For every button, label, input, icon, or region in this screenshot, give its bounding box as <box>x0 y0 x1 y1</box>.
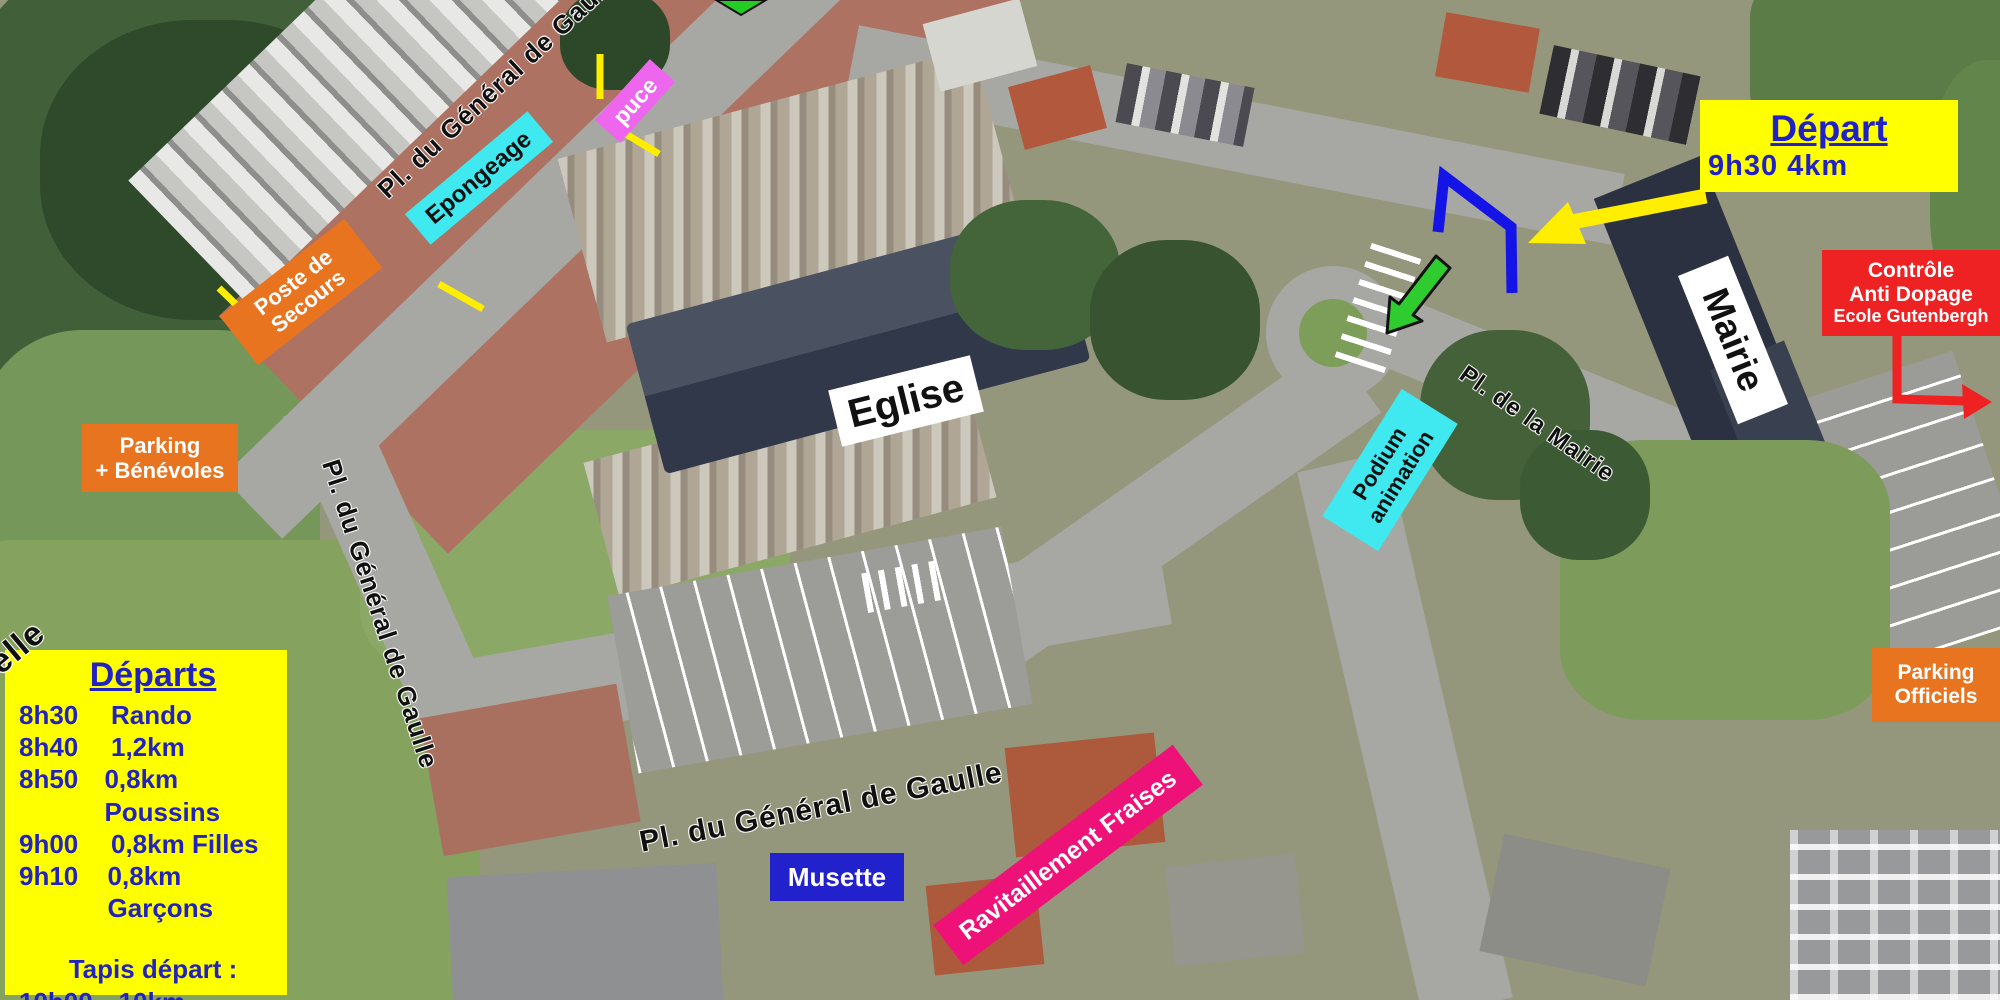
schedule-event: Rando <box>111 699 192 731</box>
schedule-time: 8h50 <box>19 763 104 827</box>
start-line-bracket-icon <box>1438 176 1512 293</box>
parking-officiels-callout: Parking Officiels <box>1872 648 2000 722</box>
controle-arrow-head-icon <box>1962 384 1992 419</box>
parking-benevoles-line1: Parking <box>120 433 201 458</box>
schedule-time: 10h00 <box>19 986 119 1000</box>
schedule-row: 10h00 10km Femmes <box>19 986 287 1000</box>
depart-callout: Départ 9h30 4km <box>1700 100 1958 192</box>
schedule-row: 9h00 0,8km Filles <box>19 828 287 860</box>
controle-line1: Contrôle <box>1868 259 1954 283</box>
race-course-map: Départ 9h30 4km Contrôle Anti Dopage Eco… <box>0 0 2000 1000</box>
departs-schedule-panel: Départs 8h30 Rando 8h40 1,2km 8h50 0,8km… <box>5 650 287 995</box>
depart-time: 9h30 4km <box>1700 150 1848 183</box>
schedule-row: 8h40 1,2km <box>19 731 287 763</box>
controle-line3: Ecole Gutenbergh <box>1833 306 1988 326</box>
schedule-time: 9h10 <box>19 860 108 924</box>
schedule-time: 8h30 <box>19 699 111 731</box>
schedule-title: Départs <box>19 656 287 695</box>
schedule-event: 0,8km Garçons <box>108 860 287 924</box>
controle-line2: Anti Dopage <box>1849 283 1973 307</box>
schedule-time: 8h40 <box>19 731 111 763</box>
depart-title: Départ <box>1770 109 1887 150</box>
schedule-row: 8h50 0,8km Poussins <box>19 763 287 827</box>
yellow-tick-icon <box>439 284 483 309</box>
controle-arrow-shaft <box>1897 336 1966 401</box>
depart-arrow-shaft <box>1572 196 1706 222</box>
schedule-event: 1,2km <box>111 731 185 763</box>
parking-officiels-line2: Officiels <box>1895 685 1978 709</box>
parking-officiels-line1: Parking <box>1897 661 1974 685</box>
schedule-time: 9h00 <box>19 828 111 860</box>
schedule-row: 8h30 Rando <box>19 699 287 731</box>
schedule-row: 9h10 0,8km Garçons <box>19 860 287 924</box>
schedule-event: 0,8km Filles <box>111 828 258 860</box>
top-edge-green-arrow-icon <box>716 0 766 15</box>
schedule-event: 10km Femmes <box>119 986 287 1000</box>
tapis-depart-label: Tapis départ : <box>19 953 287 987</box>
schedule-event: 0,8km Poussins <box>104 763 287 827</box>
controle-antidopage-callout: Contrôle Anti Dopage Ecole Gutenbergh <box>1822 250 2000 336</box>
musette-callout: Musette <box>770 853 904 901</box>
parking-benevoles-line2: + Bénévoles <box>95 458 224 483</box>
course-green-arrow-icon <box>1387 256 1450 333</box>
parking-benevoles-callout: Parking + Bénévoles <box>82 424 238 492</box>
